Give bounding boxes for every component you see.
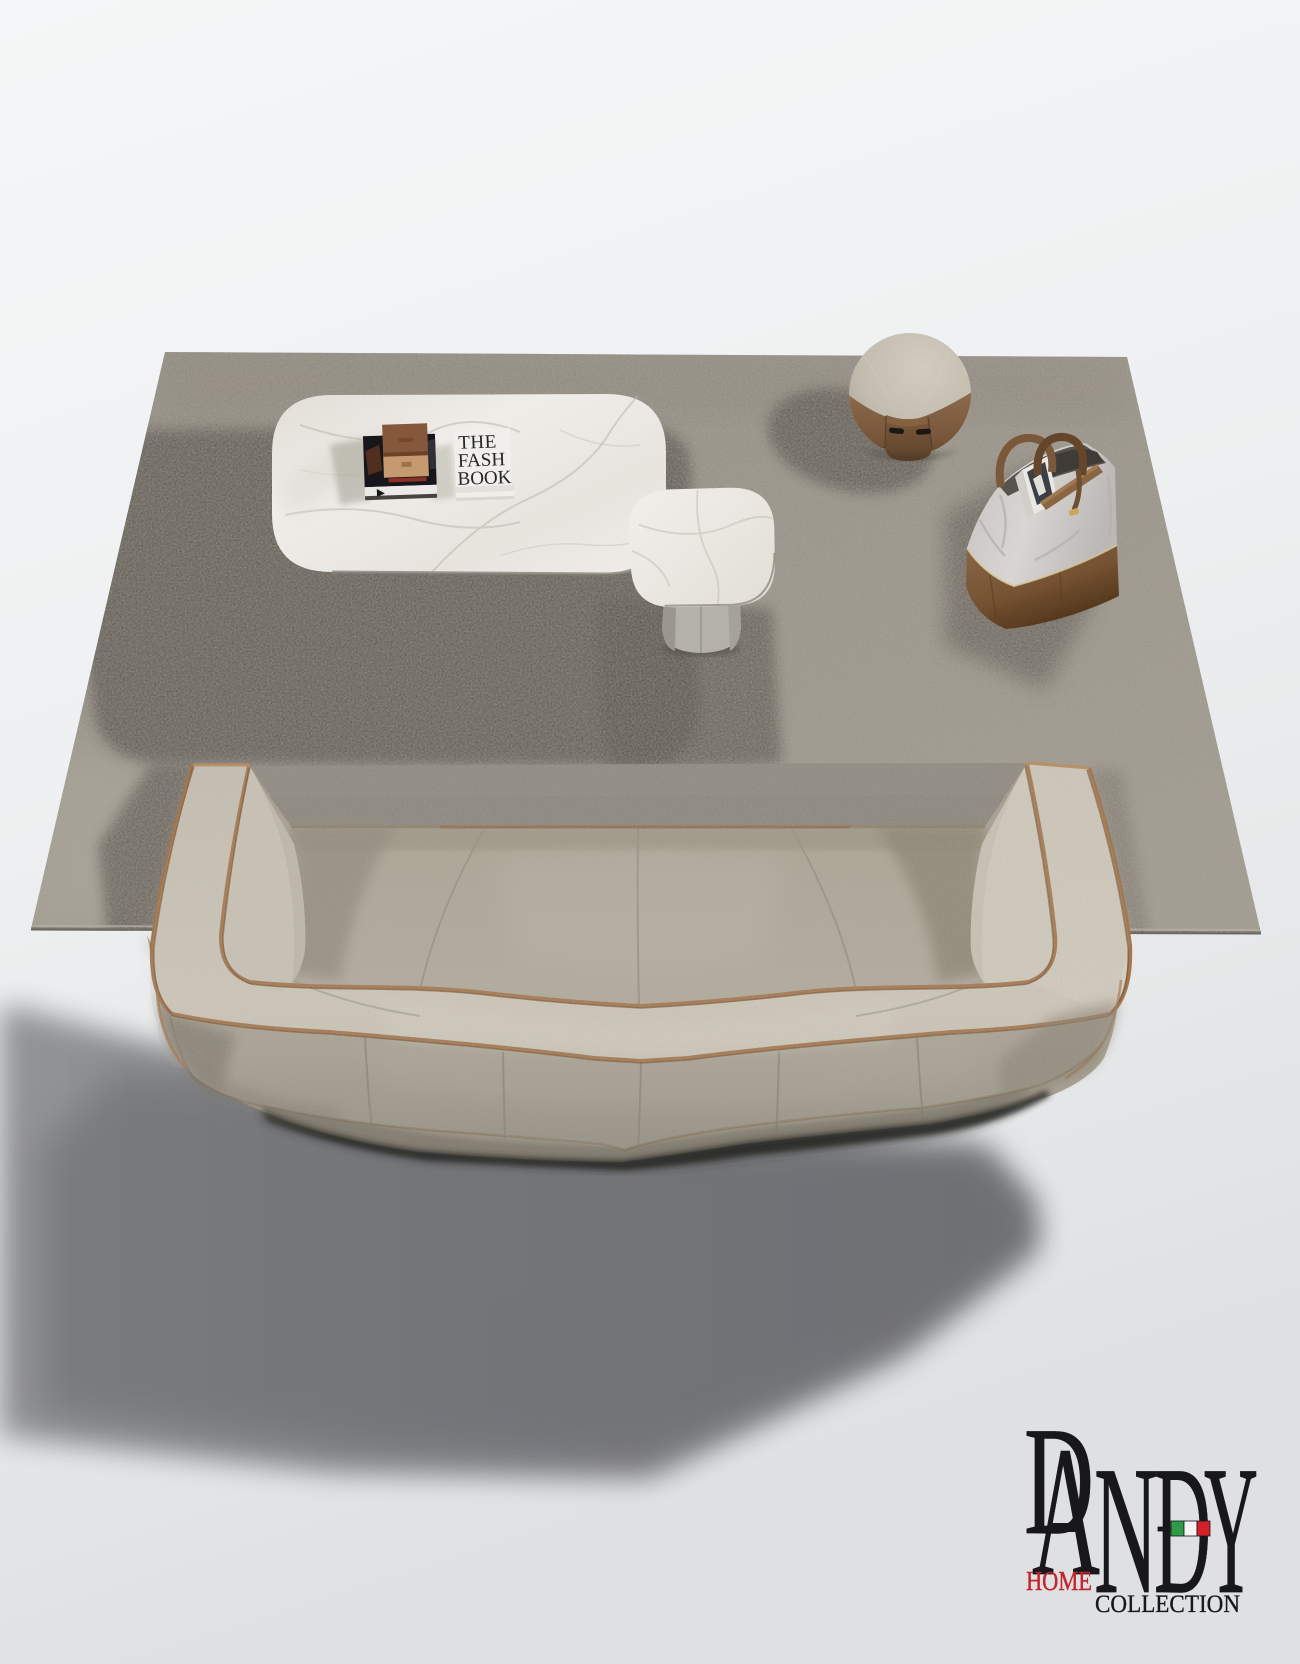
svg-text:COLLECTION: COLLECTION — [1095, 1591, 1240, 1618]
svg-text:BOOK: BOOK — [457, 467, 512, 490]
svg-text:HOME: HOME — [1026, 1566, 1092, 1596]
